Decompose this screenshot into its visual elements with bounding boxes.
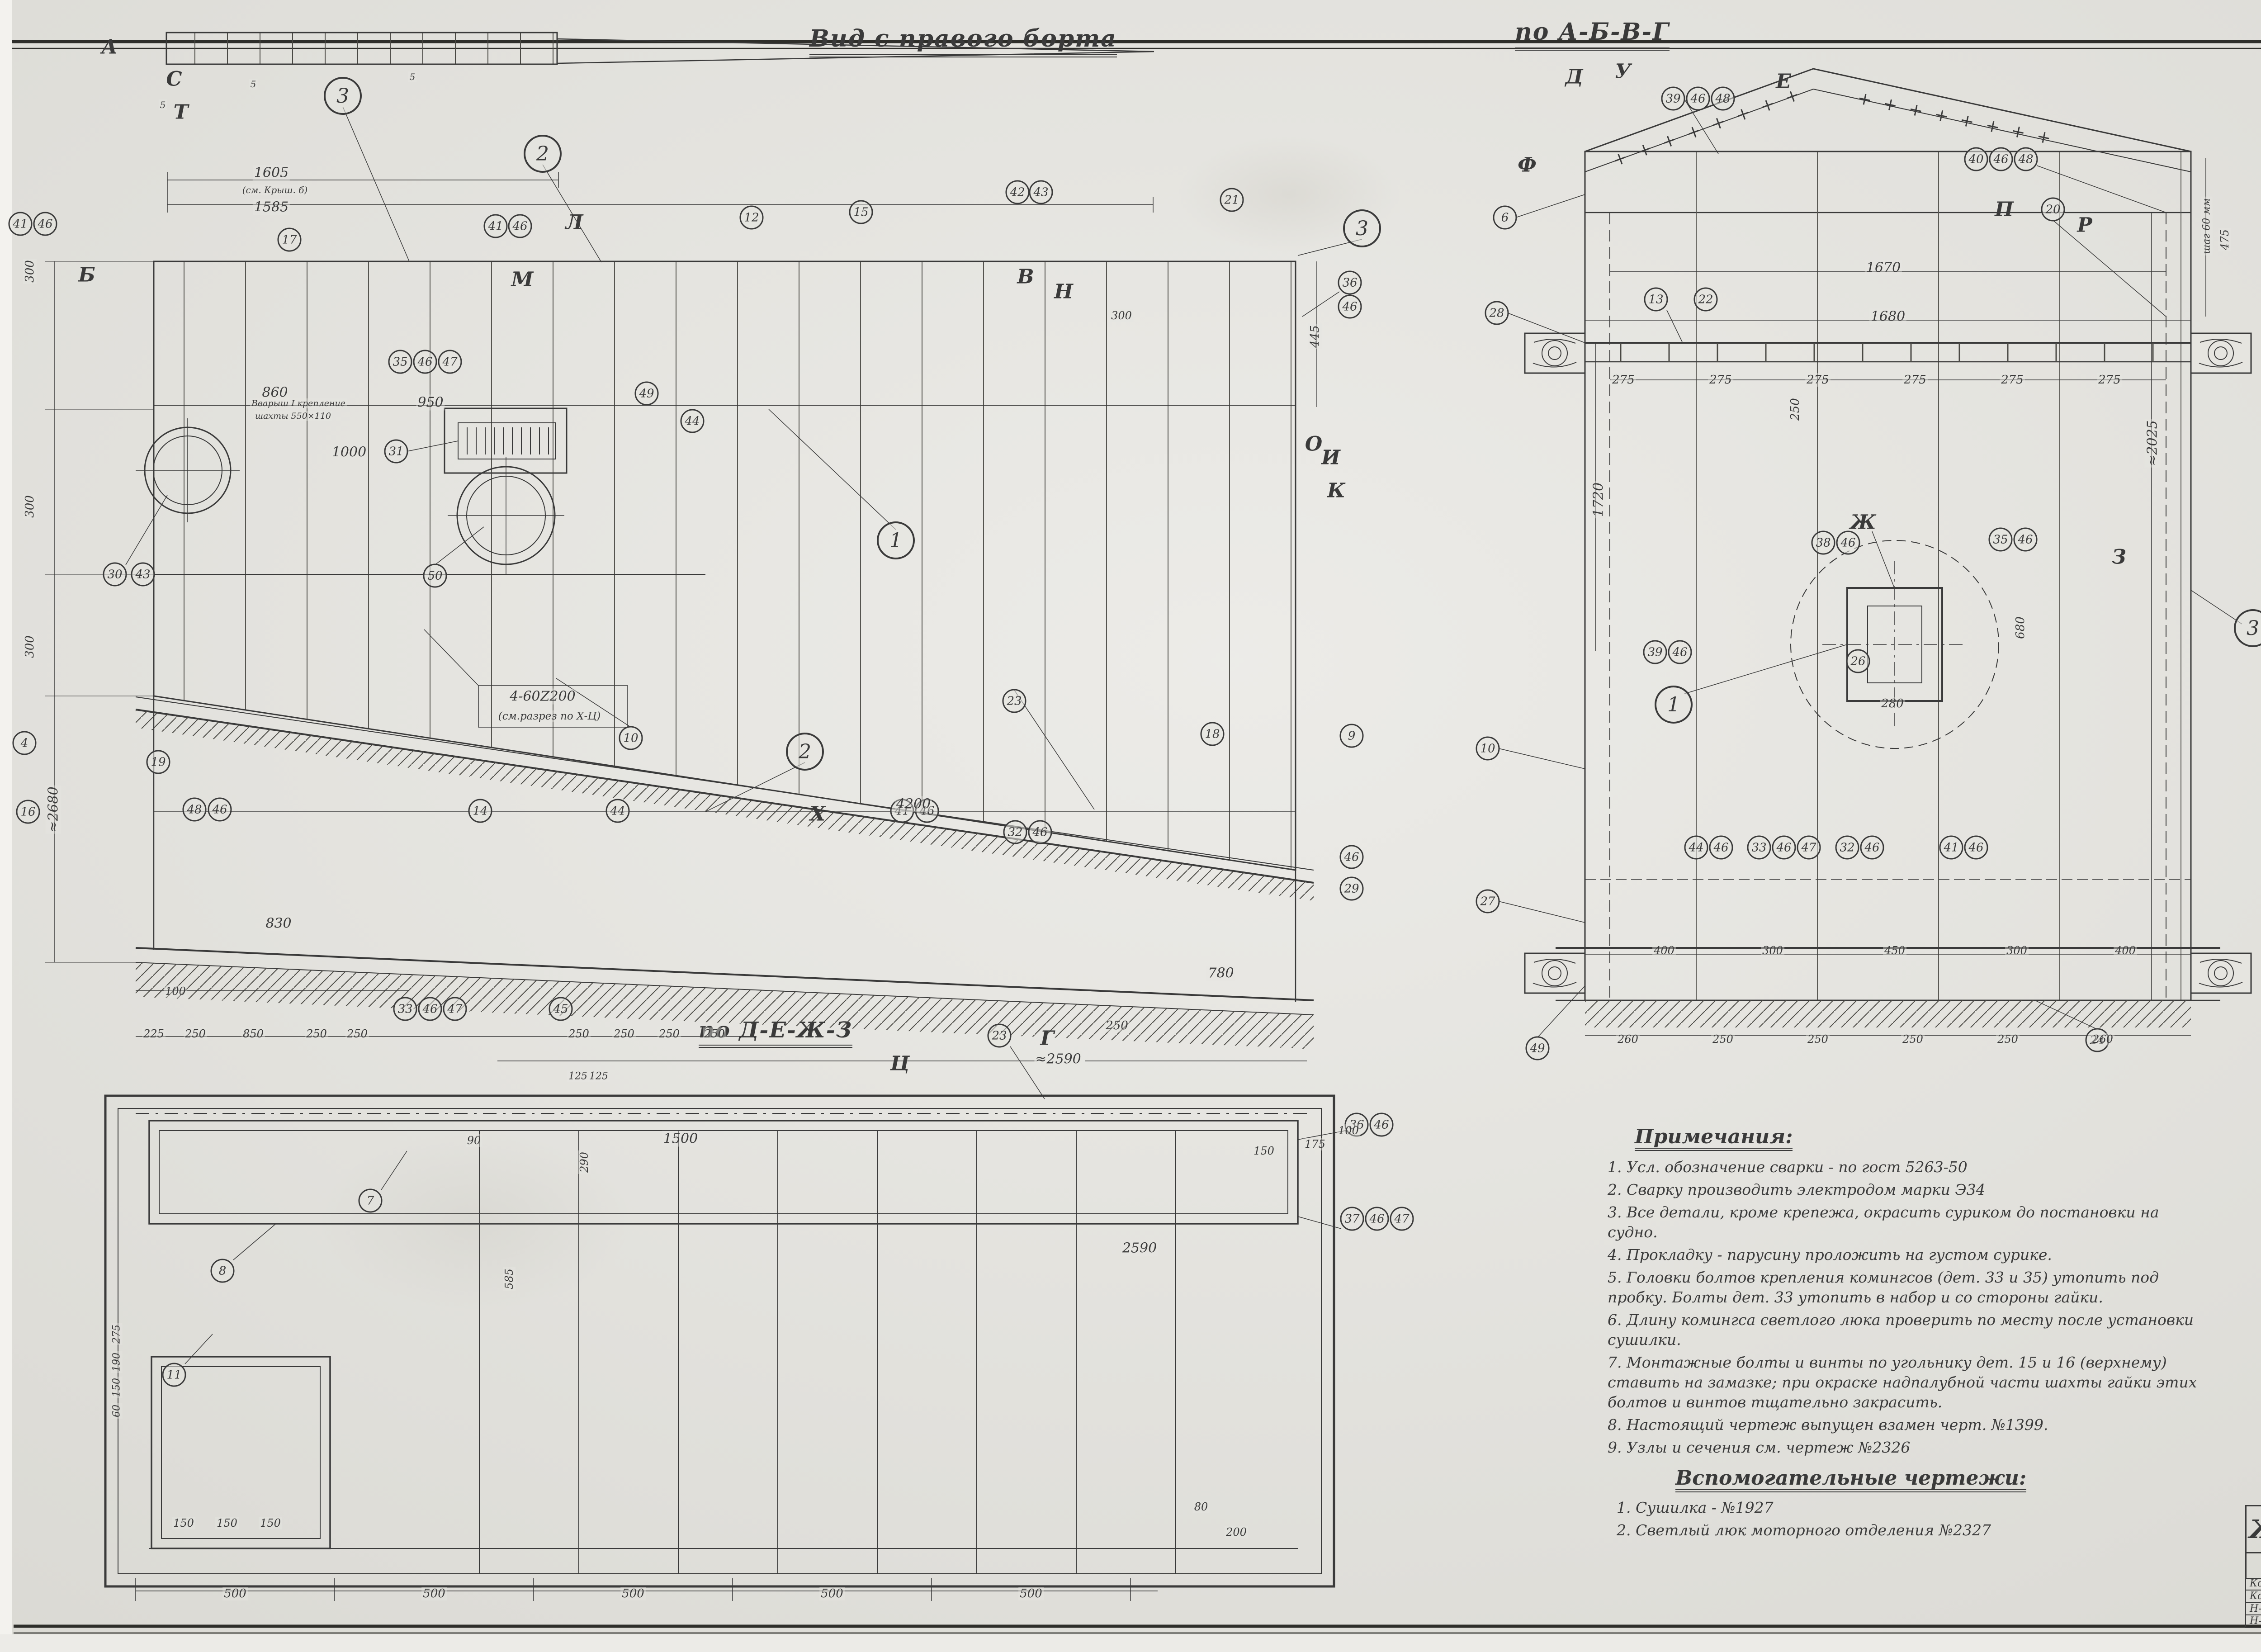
section-letter-З: З [2112,546,2126,569]
dimension-label: 500 [222,1587,248,1600]
callout-13: 13 [1644,288,1668,312]
dimension-label: (см.разрез по Х-Ц) [497,710,602,722]
callout-39: 39 [1643,640,1667,664]
callout-33: 33 [1747,836,1771,860]
dimension-label: 90 [466,1134,482,1147]
callout-11: 11 [162,1363,186,1387]
callout-41: 41 [484,214,508,238]
section-letter-О: О [1305,433,1322,456]
dimension-label: ≈2680 [46,785,61,833]
dimension-label: 150 [111,1377,123,1398]
dimension-label: 1680 [1869,309,1906,325]
dimension-label: 475 [2218,228,2231,251]
dimension-label: 300 [23,634,37,659]
dimension-label: 250 [1901,1033,1925,1046]
section-letter-И: И [1321,446,1340,469]
dimension-label: 250 [1806,1033,1830,1046]
callout-7: 7 [359,1189,383,1213]
callout-35: 35 [1989,528,2013,552]
callout-46: 46 [1365,1207,1389,1231]
dimension-label: 275 [1708,373,1733,387]
callout-16: 16 [16,800,40,824]
callout-47: 47 [1390,1207,1414,1231]
callout-44: 44 [606,799,630,823]
dimension-label: 830 [264,916,293,932]
dimension-label: 125 [567,1071,589,1082]
section-letter-Т: Т [174,101,189,124]
callout-45: 45 [549,997,573,1021]
section-letter-Ж: Ж [1850,511,1876,534]
callout-19: 19 [147,750,170,774]
callout-46: 46 [1772,836,1796,860]
dimension-label: 5 [159,99,167,110]
dimension-label: 175 [1303,1138,1327,1150]
callout-48: 48 [2014,147,2038,171]
callout-46: 46 [1989,147,2013,171]
dimension-label: 300 [2005,944,2029,957]
section-letter-К: К [1327,479,1345,502]
callout-4: 4 [13,731,37,755]
dimension-label: 250 [1104,1019,1130,1032]
callout-22: 22 [1694,288,1718,312]
section-letter-В: В [1017,265,1034,289]
callout-32: 32 [1003,820,1027,844]
section-letter-С: С [166,68,182,91]
dimension-label: 500 [1018,1587,1044,1600]
dimension-label: 400 [1652,944,1676,957]
callout-46: 46 [1860,836,1884,860]
callout-46: 46 [1964,836,1988,860]
callout-46: 46 [1370,1113,1394,1137]
callout-46: 46 [418,997,442,1021]
dimension-label: 445 [1308,324,1322,349]
callout-46: 46 [1668,640,1692,664]
section-letter-Р: Р [2077,214,2092,237]
callout-3: 3 [324,77,362,115]
callout-23: 23 [988,1024,1012,1048]
dimension-label: 275 [1611,373,1636,387]
callout-33: 33 [393,997,417,1021]
dimension-label: 300 [23,259,37,284]
dimension-label: 300 [1110,309,1133,322]
callout-6: 6 [1493,206,1517,230]
dimension-label: 500 [620,1587,646,1600]
callout-46: 46 [1028,820,1052,844]
dimension-label: 780 [1206,966,1235,981]
callout-10: 10 [1476,737,1500,761]
callout-31: 31 [384,440,408,464]
callout-35: 35 [388,350,412,374]
dimension-label: 5 [249,79,258,90]
callout-46: 46 [508,214,532,238]
callout-1: 1 [1655,686,1693,724]
section-letter-Ф: Ф [1518,154,1537,177]
dimension-label: 80 [1193,1501,1210,1513]
dimension-label: 1585 [253,199,290,215]
dimension-label: 2590 [1121,1240,1158,1256]
callout-8: 8 [211,1259,235,1283]
callout-47: 47 [438,350,462,374]
callout-44: 44 [1684,836,1708,860]
callout-15: 15 [849,200,873,224]
callout-48: 48 [183,798,207,822]
callout-49: 49 [1526,1037,1550,1060]
dimension-label: Вварыш Ⅰ крепление [250,398,347,408]
dimension-label: ≈2025 [2145,419,2161,467]
callout-41: 41 [9,212,33,236]
dimension-label: 275 [1805,373,1831,387]
dimension-label: 4200 [895,796,932,812]
callout-44: 44 [681,409,705,433]
dimension-label: 200 [1225,1526,1248,1538]
dimension-label: 250 [1711,1033,1735,1046]
dimension-label: 150 [215,1517,239,1529]
callout-23: 23 [1003,689,1026,713]
callout-20: 20 [2041,198,2065,222]
callout-49: 49 [635,382,659,406]
dimension-label: 290 [578,1150,591,1174]
callout-50: 50 [423,564,447,588]
dimension-label: 250 [657,1027,681,1040]
dimension-label: 275 [1902,373,1928,387]
dimension-label: 150 [1252,1145,1276,1157]
section-letter-Х: Х [810,803,825,826]
callout-46: 46 [413,350,437,374]
callout-32: 32 [1835,836,1859,860]
callout-3: 3 [1343,209,1381,247]
annotations-layer: 3211741464146121542432133646354647494431… [0,0,2261,1652]
dimension-label: 275 [2000,373,2025,387]
dimension-label: 280 [1880,697,1905,710]
section-letter-Л: Л [566,211,583,234]
callout-43: 43 [1029,180,1053,204]
dimension-label: 100 [164,985,187,998]
dimension-label: 275 [2097,373,2122,387]
callout-3: 3 [2234,609,2261,647]
dimension-label: 300 [23,494,37,519]
callout-46: 46 [1836,531,1860,555]
callout-30: 30 [103,563,127,587]
dimension-label: шаг 60 мм [2201,197,2213,256]
dimension-label: ≈2590 [1034,1051,1082,1067]
callout-46: 46 [1340,845,1364,869]
section-letter-Г: Г [1041,1027,1054,1050]
dimension-label: 250 [612,1027,636,1040]
callout-2: 2 [786,733,824,771]
dimension-label: 850 [241,1027,265,1040]
dimension-label: 1670 [1865,260,1902,276]
callout-14: 14 [468,799,492,823]
callout-47: 47 [443,997,467,1021]
callout-2: 2 [524,135,562,173]
callout-39: 39 [1661,87,1685,111]
dimension-label: 500 [421,1587,447,1600]
callout-12: 12 [740,206,764,230]
dimension-label: 250 [1788,397,1802,422]
dimension-label: 190 [111,1351,123,1373]
callout-37: 37 [1340,1207,1364,1231]
callout-46: 46 [2014,528,2038,552]
dimension-label: 1000 [331,445,368,460]
callout-46: 46 [1686,87,1710,111]
dimension-label: 150 [172,1517,195,1529]
dimension-label: 585 [503,1267,516,1291]
callout-18: 18 [1201,722,1225,746]
dimension-label: 250 [567,1027,591,1040]
section-letter-Ц: Ц [890,1052,910,1075]
dimension-label: 250 [184,1027,207,1040]
dimension-label: 500 [819,1587,845,1600]
dimension-label: 1605 [253,165,290,181]
dimension-label: шахты 550×110 [254,411,332,421]
callout-46: 46 [208,798,232,822]
callout-38: 38 [1812,531,1835,555]
callout-9: 9 [1340,724,1364,748]
callout-42: 42 [1006,180,1030,204]
section-letter-Е: Е [1776,70,1791,93]
dimension-label: 150 [259,1517,282,1529]
section-letter-Б: Б [78,264,95,287]
dimension-label: 100 [1337,1124,1360,1137]
dimension-label: 125 [588,1071,610,1082]
drawing-sheet: ++++++++ ++++++++ Вид с правого борта по… [0,0,2261,1652]
dimension-label: 260 [1616,1033,1640,1046]
dimension-label: (см. Крыш. б) [241,185,309,195]
callout-40: 40 [1964,147,1988,171]
dimension-label: 225 [142,1027,166,1040]
callout-1: 1 [877,521,915,559]
dimension-label: 250 [305,1027,328,1040]
callout-48: 48 [1711,87,1735,111]
section-letter-М: М [511,268,534,291]
section-letter-П: П [1995,198,2014,221]
dimension-label: 260 [2091,1033,2114,1046]
dimension-label: 275 [111,1323,123,1345]
callout-46: 46 [33,212,57,236]
callout-46: 46 [1338,295,1362,319]
dimension-label: 250 [703,1027,726,1040]
callout-43: 43 [131,563,155,587]
callout-26: 26 [1846,649,1870,673]
dimension-label: 450 [1883,944,1906,957]
dimension-label: 60 [111,1403,123,1419]
dimension-label: 300 [1761,944,1784,957]
callout-29: 29 [1340,877,1364,901]
dimension-label: 950 [416,395,445,411]
section-letter-А: А [101,36,118,59]
section-letter-У: У [1615,60,1631,83]
callout-21: 21 [1220,188,1244,212]
dimension-label: 1720 [1591,481,1607,518]
dimension-label: 4-60Z200 [508,689,577,705]
callout-10: 10 [619,726,643,750]
dimension-label: 250 [1996,1033,2020,1046]
callout-28: 28 [1485,301,1509,325]
dimension-label: 5 [408,71,417,82]
callout-47: 47 [1797,836,1821,860]
dimension-label: 680 [2014,615,2027,640]
callout-27: 27 [1476,890,1500,914]
callout-36: 36 [1338,271,1362,295]
dimension-label: 250 [345,1027,369,1040]
section-letter-Д: Д [1565,66,1583,89]
section-letter-Н: Н [1054,280,1073,303]
dimension-label: 1500 [662,1131,699,1147]
callout-41: 41 [1939,836,1963,860]
dimension-label: 400 [2114,944,2137,957]
callout-46: 46 [1709,836,1733,860]
callout-17: 17 [278,228,302,252]
